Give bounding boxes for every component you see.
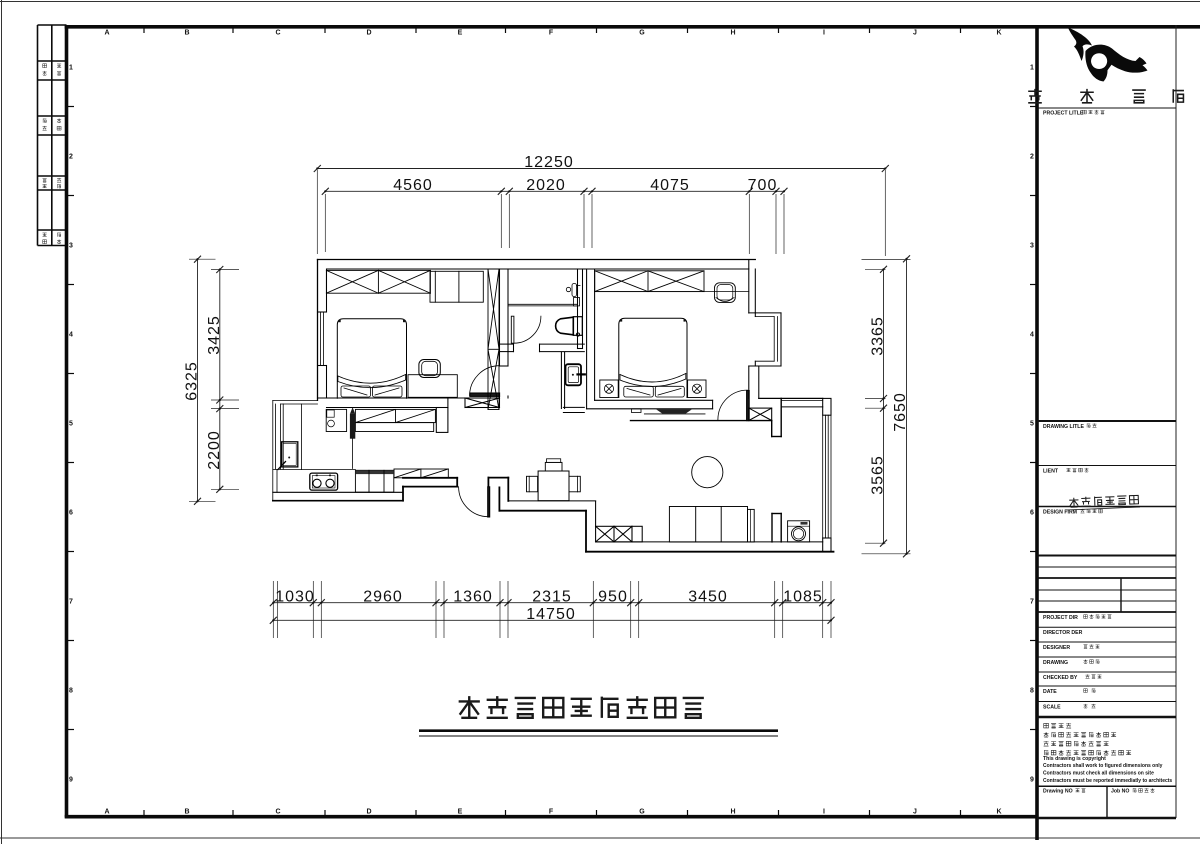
svg-text:2: 2: [1030, 154, 1034, 161]
svg-text:E: E: [458, 809, 463, 816]
svg-text:Drawing NO: Drawing NO: [1043, 789, 1073, 795]
svg-text:3450: 3450: [688, 588, 728, 605]
svg-text:DIRECTOR DER: DIRECTOR DER: [1043, 630, 1083, 636]
svg-text:8: 8: [1030, 688, 1034, 695]
svg-text:700: 700: [748, 177, 778, 194]
svg-text:2: 2: [69, 154, 73, 161]
svg-text:DRAWING: DRAWING: [1043, 660, 1068, 666]
svg-text:6325: 6325: [184, 361, 201, 401]
svg-text:B: B: [184, 30, 189, 37]
svg-text:G: G: [639, 30, 645, 37]
svg-text:C: C: [275, 30, 280, 37]
svg-text:A: A: [104, 30, 109, 37]
svg-text:1085: 1085: [783, 588, 823, 605]
svg-text:J: J: [913, 809, 917, 816]
svg-text:This drawing is copyright: This drawing is copyright: [1043, 756, 1106, 762]
svg-text:9: 9: [1030, 777, 1034, 784]
svg-text:3: 3: [1030, 243, 1034, 250]
svg-text:3425: 3425: [206, 315, 223, 355]
svg-text:4: 4: [69, 332, 73, 339]
svg-text:4560: 4560: [393, 177, 433, 194]
svg-text:C: C: [275, 809, 280, 816]
svg-text:DESIGNER: DESIGNER: [1043, 645, 1070, 651]
svg-text:E: E: [458, 30, 463, 37]
svg-text:LIENT: LIENT: [1043, 469, 1059, 475]
svg-text:Job NO: Job NO: [1111, 789, 1129, 795]
svg-text:6: 6: [1030, 510, 1034, 517]
svg-text:PROJECT DIR: PROJECT DIR: [1043, 615, 1078, 621]
svg-text:B: B: [184, 809, 189, 816]
svg-text:8: 8: [69, 688, 73, 695]
svg-text:14750: 14750: [526, 606, 576, 623]
svg-text:3365: 3365: [869, 316, 886, 356]
svg-text:7: 7: [69, 599, 73, 606]
svg-text:J: J: [913, 30, 917, 37]
svg-text:2315: 2315: [532, 588, 572, 605]
svg-text:DESIGN FIRM: DESIGN FIRM: [1043, 510, 1077, 516]
svg-text:PROJECT LITLE: PROJECT LITLE: [1043, 111, 1084, 117]
svg-text:D: D: [366, 30, 371, 37]
svg-text:G: G: [639, 809, 645, 816]
svg-text:6: 6: [69, 510, 73, 517]
svg-text:CHECKED BY: CHECKED BY: [1043, 675, 1078, 681]
svg-text:2960: 2960: [363, 588, 403, 605]
svg-text:DATE: DATE: [1043, 689, 1057, 695]
svg-text:3: 3: [69, 243, 73, 250]
svg-text:F: F: [549, 30, 554, 37]
svg-text:2200: 2200: [206, 430, 223, 470]
svg-text:H: H: [730, 809, 735, 816]
svg-text:K: K: [996, 30, 1001, 37]
svg-text:I: I: [823, 809, 825, 816]
svg-text:Contractors shall work to figu: Contractors shall work to figured dimens…: [1043, 763, 1163, 769]
svg-text:K: K: [996, 809, 1001, 816]
svg-text:9: 9: [69, 777, 73, 784]
svg-text:5: 5: [1030, 421, 1034, 428]
svg-text:Contractors must check all dim: Contractors must check all dimensions on…: [1043, 771, 1154, 777]
svg-text:SCALE: SCALE: [1043, 705, 1061, 711]
svg-text:H: H: [730, 30, 735, 37]
svg-text:1: 1: [1030, 65, 1034, 72]
svg-text:4075: 4075: [650, 177, 690, 194]
svg-text:12250: 12250: [524, 154, 574, 171]
svg-text:1030: 1030: [275, 588, 315, 605]
svg-text:7: 7: [1030, 599, 1034, 606]
svg-text:Contractors must be reported i: Contractors must be reported immediatly …: [1043, 778, 1172, 784]
svg-text:7650: 7650: [892, 392, 909, 432]
svg-text:5: 5: [69, 421, 73, 428]
svg-text:F: F: [549, 809, 554, 816]
svg-text:A: A: [104, 809, 109, 816]
svg-text:1: 1: [69, 65, 73, 72]
svg-text:DRAWING LITLE: DRAWING LITLE: [1043, 424, 1084, 430]
svg-text:4: 4: [1030, 332, 1034, 339]
svg-text:3565: 3565: [869, 455, 886, 495]
svg-text:1360: 1360: [453, 588, 493, 605]
svg-text:2020: 2020: [526, 177, 566, 194]
svg-text:D: D: [366, 809, 371, 816]
svg-text:I: I: [823, 30, 825, 37]
svg-text:950: 950: [598, 588, 628, 605]
